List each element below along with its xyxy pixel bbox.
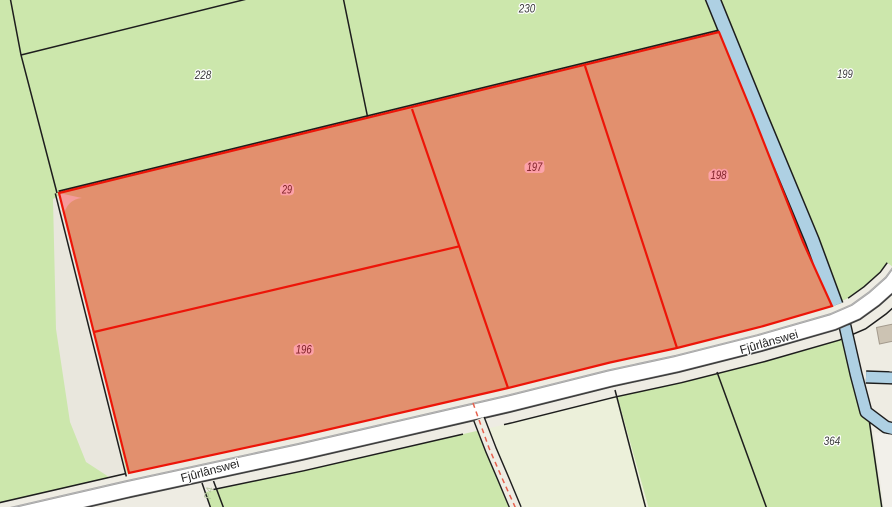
svg-text:199: 199 [837, 69, 853, 81]
svg-text:197: 197 [527, 162, 543, 174]
svg-text:198: 198 [711, 170, 728, 182]
svg-text:29: 29 [281, 185, 292, 197]
svg-text:364: 364 [824, 436, 841, 448]
svg-text:230: 230 [518, 4, 536, 16]
svg-text:196: 196 [296, 344, 313, 356]
svg-text:228: 228 [194, 70, 212, 82]
